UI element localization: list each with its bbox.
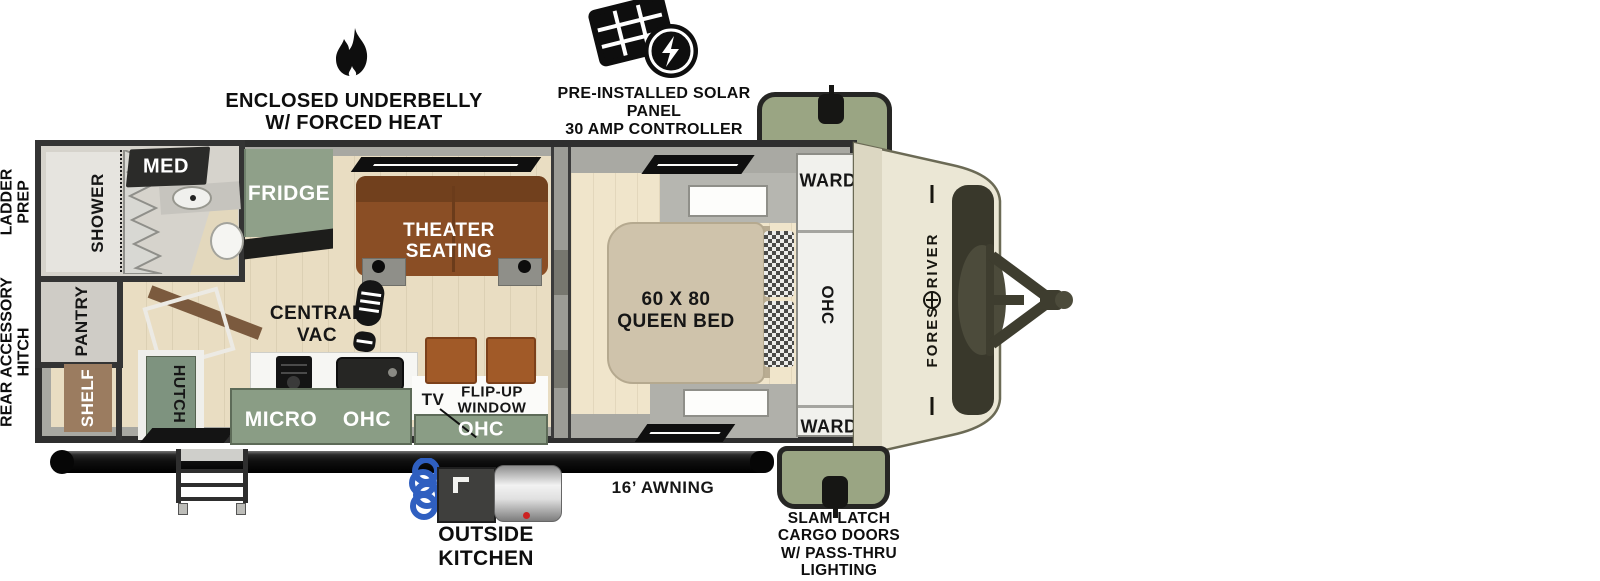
cargo-doors-line-4: LIGHTING bbox=[758, 562, 920, 579]
ottoman-right bbox=[486, 337, 536, 384]
rear-hitch-line-2: HITCH bbox=[16, 277, 33, 427]
ottoman-left bbox=[425, 337, 477, 384]
wardrobe-separator-top bbox=[798, 230, 856, 233]
floorplan-diagram: ENCLOSED UNDERBELLY W/ FORCED HEAT PRE-I… bbox=[0, 0, 1600, 581]
entry-steps bbox=[176, 449, 248, 513]
bedroom-window-top bbox=[688, 185, 768, 217]
wardrobe-separator-bottom bbox=[798, 405, 856, 408]
bed-label-2: QUEEN BED bbox=[617, 311, 734, 333]
bedroom-window-bottom bbox=[683, 389, 769, 417]
divider-recess-top bbox=[554, 250, 568, 295]
theater-label-1: THEATER bbox=[403, 220, 495, 242]
sofa-cup-left bbox=[372, 260, 385, 273]
cargo-doors-line-1: SLAM LATCH bbox=[758, 510, 920, 527]
ohc-kitchen-label: OHC bbox=[343, 408, 391, 432]
steps-rung-3 bbox=[181, 497, 243, 501]
bathroom-sink-drain bbox=[190, 195, 196, 201]
hutch-label: HUTCH bbox=[169, 365, 187, 424]
stove-grate bbox=[281, 364, 307, 366]
outside-griddle bbox=[494, 465, 562, 522]
solar-line-2: 30 AMP CONTROLLER bbox=[528, 121, 780, 139]
underbelly-line-1: ENCLOSED UNDERBELLY bbox=[204, 90, 504, 112]
cargo-door-bottom-latch bbox=[822, 476, 848, 508]
divider-recess-bottom bbox=[554, 350, 568, 388]
bedroom-vent-bottom-line bbox=[649, 432, 721, 434]
shelf-wall bbox=[116, 364, 122, 440]
rear-accessory-hitch-callout: REAR ACCESSORY HITCH bbox=[0, 277, 33, 427]
ladder-prep-callout: LADDER PREP bbox=[0, 169, 33, 236]
steps-rail-right bbox=[243, 449, 248, 503]
steps-rung-2 bbox=[181, 483, 243, 487]
cargo-door-top-latch-stem bbox=[829, 85, 834, 95]
steps-rung-1 bbox=[181, 469, 243, 473]
flip-up-label-1: FLIP-UP bbox=[461, 384, 523, 401]
living-window-line bbox=[373, 164, 518, 166]
central-vac-label-2: VAC bbox=[297, 325, 337, 347]
ohc-kitchen-right-label: OHC bbox=[458, 419, 504, 442]
bedroom-skylight-line bbox=[657, 164, 738, 166]
ward-rear-label: WARD bbox=[801, 417, 858, 438]
shower-label: SHOWER bbox=[88, 173, 108, 253]
bed-label-1: 60 X 80 bbox=[642, 289, 711, 311]
med-cabinet-label: MED bbox=[143, 156, 189, 179]
sink-faucet bbox=[388, 368, 397, 377]
ohc-bedroom-label: OHC bbox=[817, 285, 837, 324]
griddle-indicator bbox=[523, 512, 530, 519]
underbelly-callout: ENCLOSED UNDERBELLY W/ FORCED HEAT bbox=[204, 90, 504, 135]
lightning-bolt-icon bbox=[644, 24, 698, 78]
cargo-doors-callout: SLAM LATCH CARGO DOORS W/ PASS-THRU LIGH… bbox=[758, 510, 920, 579]
bedroom-skylight bbox=[641, 155, 754, 174]
outside-faucet-spout bbox=[453, 477, 469, 482]
fridge-label: FRIDGE bbox=[248, 182, 330, 206]
pillow-bottom bbox=[764, 301, 794, 367]
theater-label-2: SEATING bbox=[406, 241, 493, 263]
stove bbox=[276, 356, 312, 390]
shelf-label: SHELF bbox=[78, 369, 98, 427]
bedroom-vent-bottom bbox=[635, 424, 736, 442]
underbelly-line-2: W/ FORCED HEAT bbox=[204, 112, 504, 134]
cargo-doors-line-2: CARGO DOORS bbox=[758, 527, 920, 544]
pillow-top bbox=[764, 231, 794, 297]
ward-front-label: WARD bbox=[800, 171, 857, 192]
steps-platform bbox=[176, 449, 248, 461]
steps-foot-right bbox=[236, 503, 246, 515]
shower-stall bbox=[46, 152, 120, 272]
sofa-cup-right bbox=[518, 260, 531, 273]
cargo-door-top-latch bbox=[818, 94, 844, 124]
outside-kitchen-line-1: OUTSIDE bbox=[386, 523, 586, 547]
curtain-track bbox=[120, 150, 122, 272]
outside-kitchen-box bbox=[437, 467, 496, 523]
cargo-doors-line-3: W/ PASS-THRU bbox=[758, 545, 920, 562]
flame-icon bbox=[333, 28, 373, 88]
awning-callout: 16’ AWNING bbox=[612, 478, 715, 498]
awning-cap-right bbox=[750, 451, 774, 473]
micro-label: MICRO bbox=[245, 408, 318, 432]
tv-label: TV bbox=[422, 390, 445, 410]
toilet bbox=[210, 222, 244, 260]
entry-mat bbox=[140, 428, 237, 443]
outside-kitchen-callout: OUTSIDE KITCHEN bbox=[386, 523, 586, 570]
stove-grate-2 bbox=[281, 372, 307, 374]
steps-rail-left bbox=[176, 449, 181, 503]
steps-foot-left bbox=[178, 503, 188, 515]
pantry-label: PANTRY bbox=[72, 286, 92, 357]
solar-line-1: PRE-INSTALLED SOLAR PANEL bbox=[528, 85, 780, 121]
awning-cap-left bbox=[50, 450, 74, 474]
living-window bbox=[351, 157, 542, 172]
ladder-prep-line-1: LADDER bbox=[0, 169, 16, 236]
forest-river-logo-icon bbox=[924, 292, 940, 308]
ladder-prep-line-2: PREP bbox=[16, 169, 33, 236]
trailer-hitch bbox=[956, 238, 1074, 362]
rear-hitch-line-1: REAR ACCESSORY bbox=[0, 277, 16, 427]
outside-kitchen-line-2: KITCHEN bbox=[386, 547, 586, 571]
flip-up-label-2: WINDOW bbox=[458, 400, 527, 417]
solar-panel-icon bbox=[578, 0, 708, 86]
